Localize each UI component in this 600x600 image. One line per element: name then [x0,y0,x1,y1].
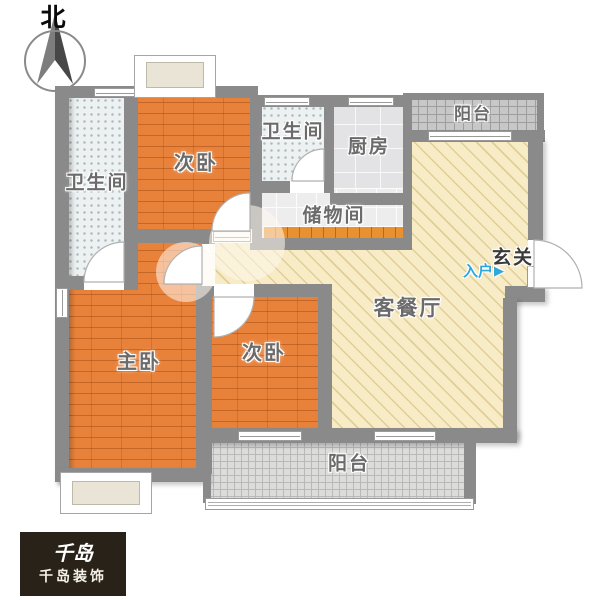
window-bathroom-mid [264,97,310,106]
label-bedroom-bottom: 次卧 [242,337,286,366]
label-master-bedroom: 主卧 [117,346,161,375]
label-bathroom-left: 卫生间 [65,168,128,195]
window-living-balcony-top [428,131,512,141]
label-living-dining: 客餐厅 [374,292,443,322]
balcony-bottom-rail [205,498,474,510]
compass-north-label: 北 [40,0,65,34]
label-kitchen: 厨房 [348,132,390,159]
master-bedroom-floor [62,284,202,474]
door-gap-master [202,244,215,286]
label-bathroom-mid: 卫生间 [261,117,324,144]
bay-window-top [134,55,216,98]
wall-outer-right-upper [528,138,543,240]
window-master-left [56,288,68,318]
entry-direction-label: 入户 [463,260,493,281]
wall-storage-bottom [250,238,412,250]
company-logo-name: 千岛装饰 [39,566,107,586]
window-living-balcony-bottom [374,431,436,441]
wall-bath-kitchen-divider [324,95,334,193]
door-gap-bathroom-mid [290,181,324,193]
door-gap-bathroom-left [84,276,124,290]
bathroom-mid-floor [256,100,330,188]
window-kitchen [348,97,394,106]
master-entry-nook-floor [134,240,206,290]
bay-window-master [60,472,152,514]
entry-arrow-icon: ▶ [494,264,504,277]
threshold-bedroom-top [213,231,251,242]
bay-window-master-glass [72,481,140,505]
entry-direction: 入户▶ [463,260,504,281]
wall-kitchen-right [403,93,412,250]
label-bedroom-top: 次卧 [174,147,218,176]
company-logo-mark: 千岛 [53,542,93,564]
wall-bedroom-bottom-right [318,284,332,443]
door-gap-bedroom-bottom [214,284,254,297]
floor-plan: 北 卫生间 次卧 卫生间 厨房 储物间 阳台 客餐厅 主卧 次卧 阳台 玄关 入… [0,0,600,600]
company-logo: 千岛 千岛装饰 [20,532,126,596]
window-bathroom-left [94,88,138,97]
label-storage: 储物间 [302,201,365,228]
compass-ring [24,30,86,92]
wall-balcony-bottom-left [203,443,211,503]
window-bedroom-bottom-balcony [238,431,302,441]
bay-window-top-glass [146,62,204,88]
wall-balcony-bottom-right [464,438,476,504]
wall-bath-mid-left [250,95,262,250]
wall-outer-right-lower [503,298,517,438]
label-balcony-top: 阳台 [454,100,492,125]
label-balcony-bottom: 阳台 [328,449,370,476]
